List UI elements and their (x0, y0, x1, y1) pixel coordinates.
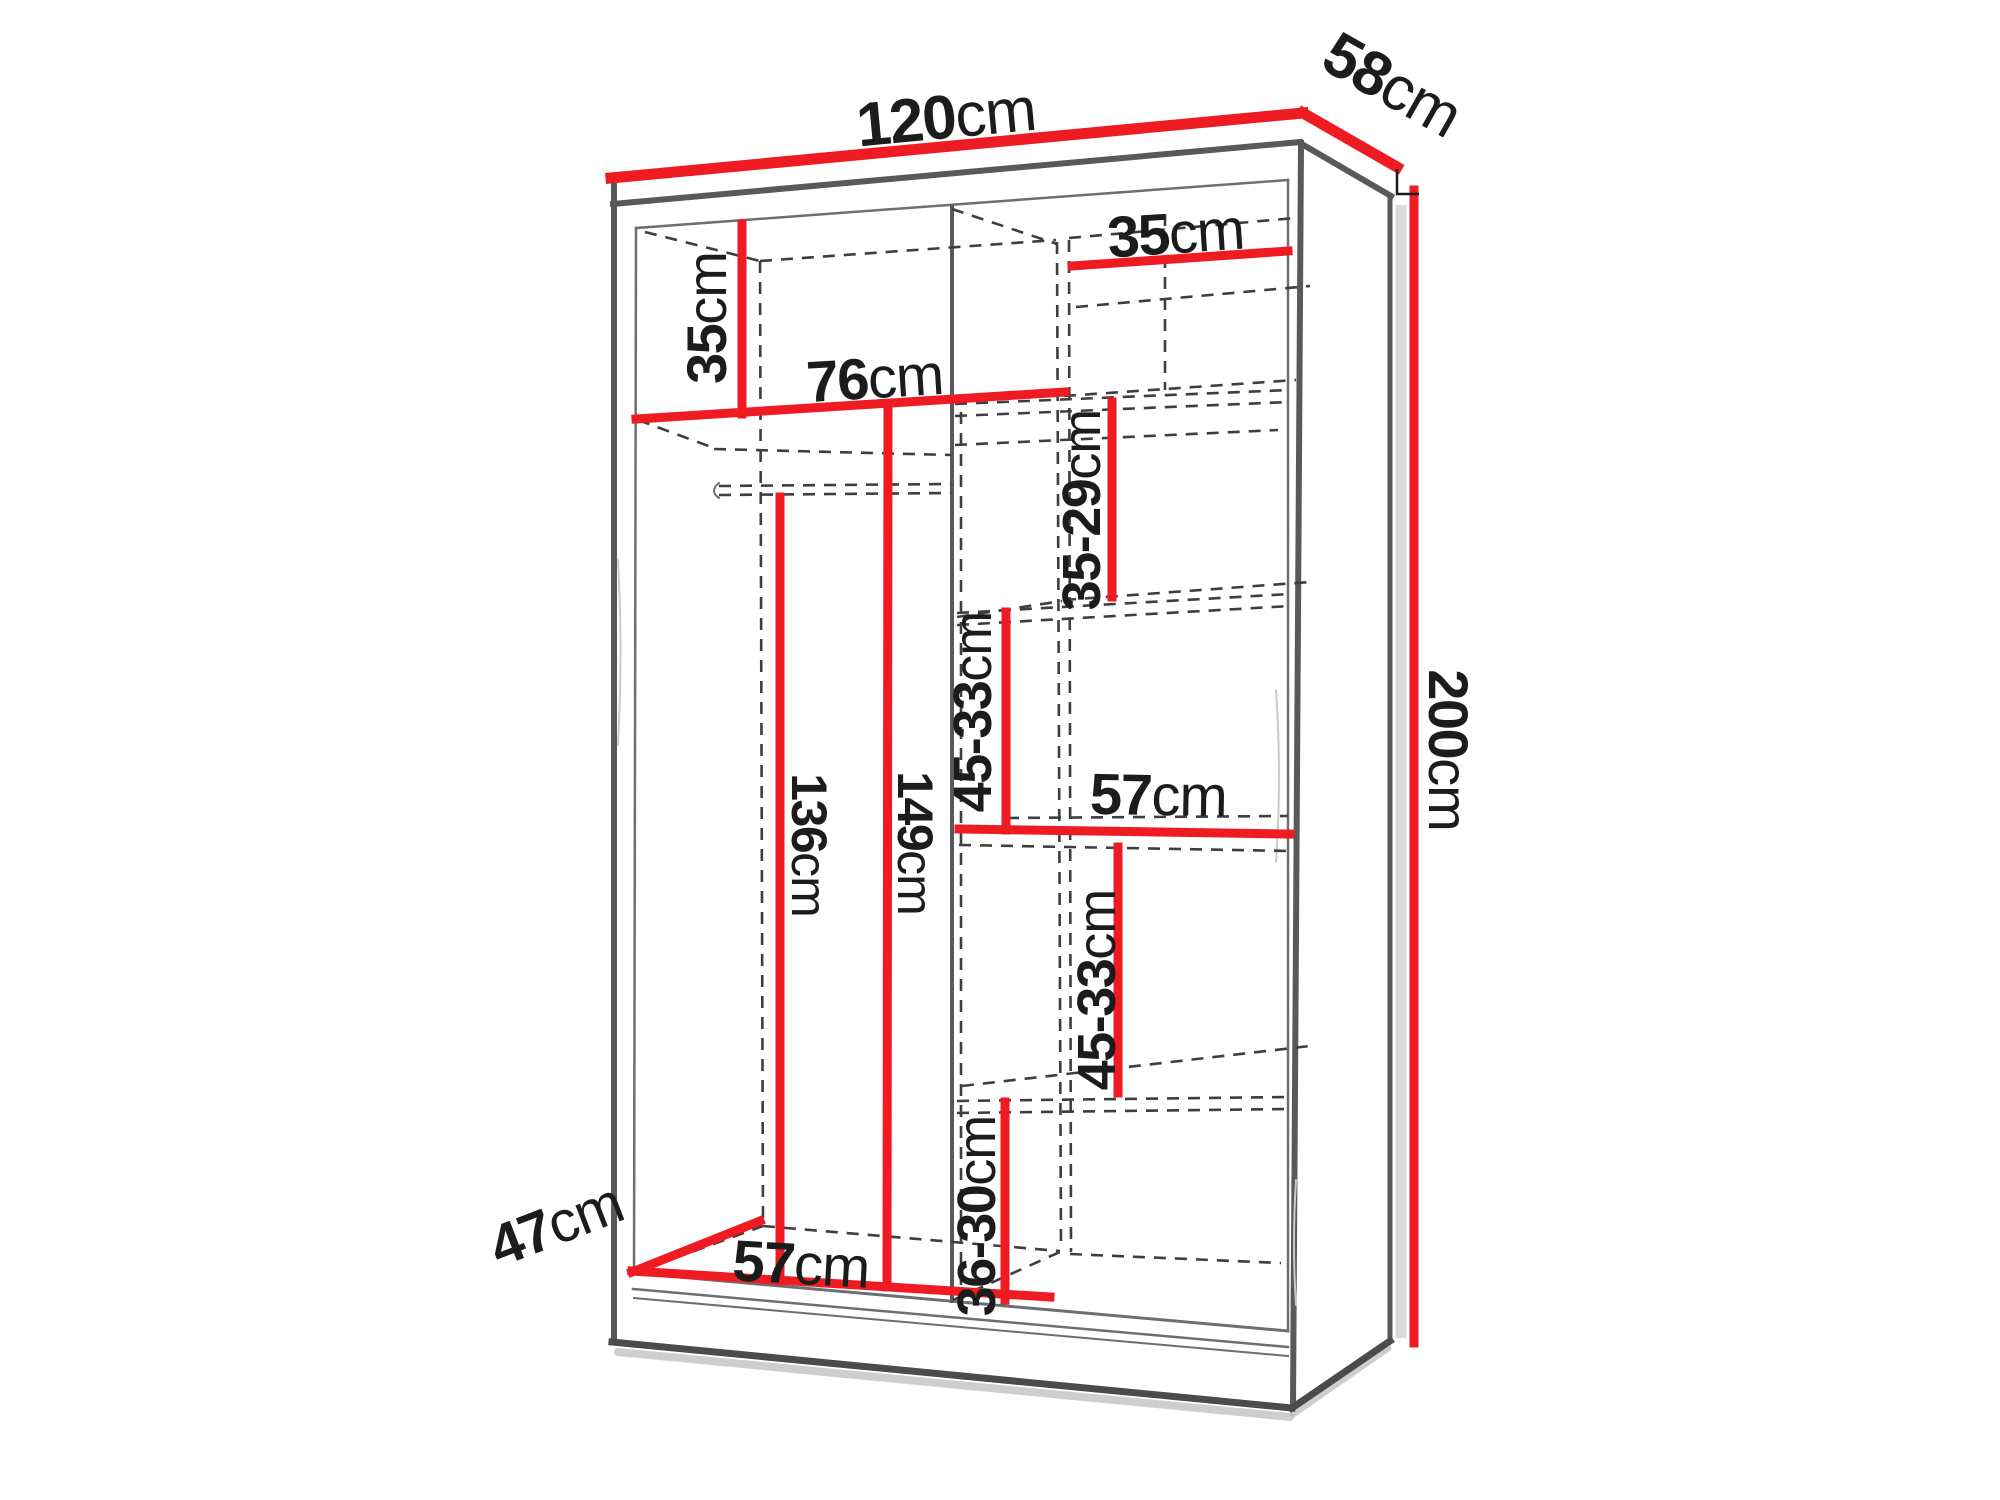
dim-label-overall-height: 200cm (1417, 669, 1480, 831)
dim-label-left-interior-height: 149cm (887, 771, 943, 915)
dim-label-left-shelf-width: 76cm (805, 342, 946, 415)
dim-label-right-third-height: 45-33cm (1067, 890, 1127, 1091)
dim-label-right-top-shelf: 35cm (1105, 197, 1246, 271)
dim-label-hanging-height: 136cm (781, 773, 837, 917)
dim-label-right-bottom-height: 36-30cm (947, 1116, 1007, 1317)
dim-label-bottom-depth: 47cm (480, 1170, 631, 1280)
dim-label-right-upper-height: 35-29cm (1052, 410, 1112, 611)
dim-label-bottom-width: 57cm (731, 1228, 871, 1301)
wardrobe-diagram: 120cm 58cm 200cm 35cm 35cm 76cm 35-29cm … (0, 0, 2000, 1500)
dim-label-left-top-height: 35cm (675, 252, 738, 384)
measure-line-right-shelf-width (959, 829, 1290, 834)
dim-label-right-second-height: 45-33cm (943, 612, 1003, 813)
diagram-canvas: 120cm 58cm 200cm 35cm 35cm 76cm 35-29cm … (0, 0, 2000, 1500)
dim-label-right-shelf-width: 57cm (1089, 762, 1227, 829)
